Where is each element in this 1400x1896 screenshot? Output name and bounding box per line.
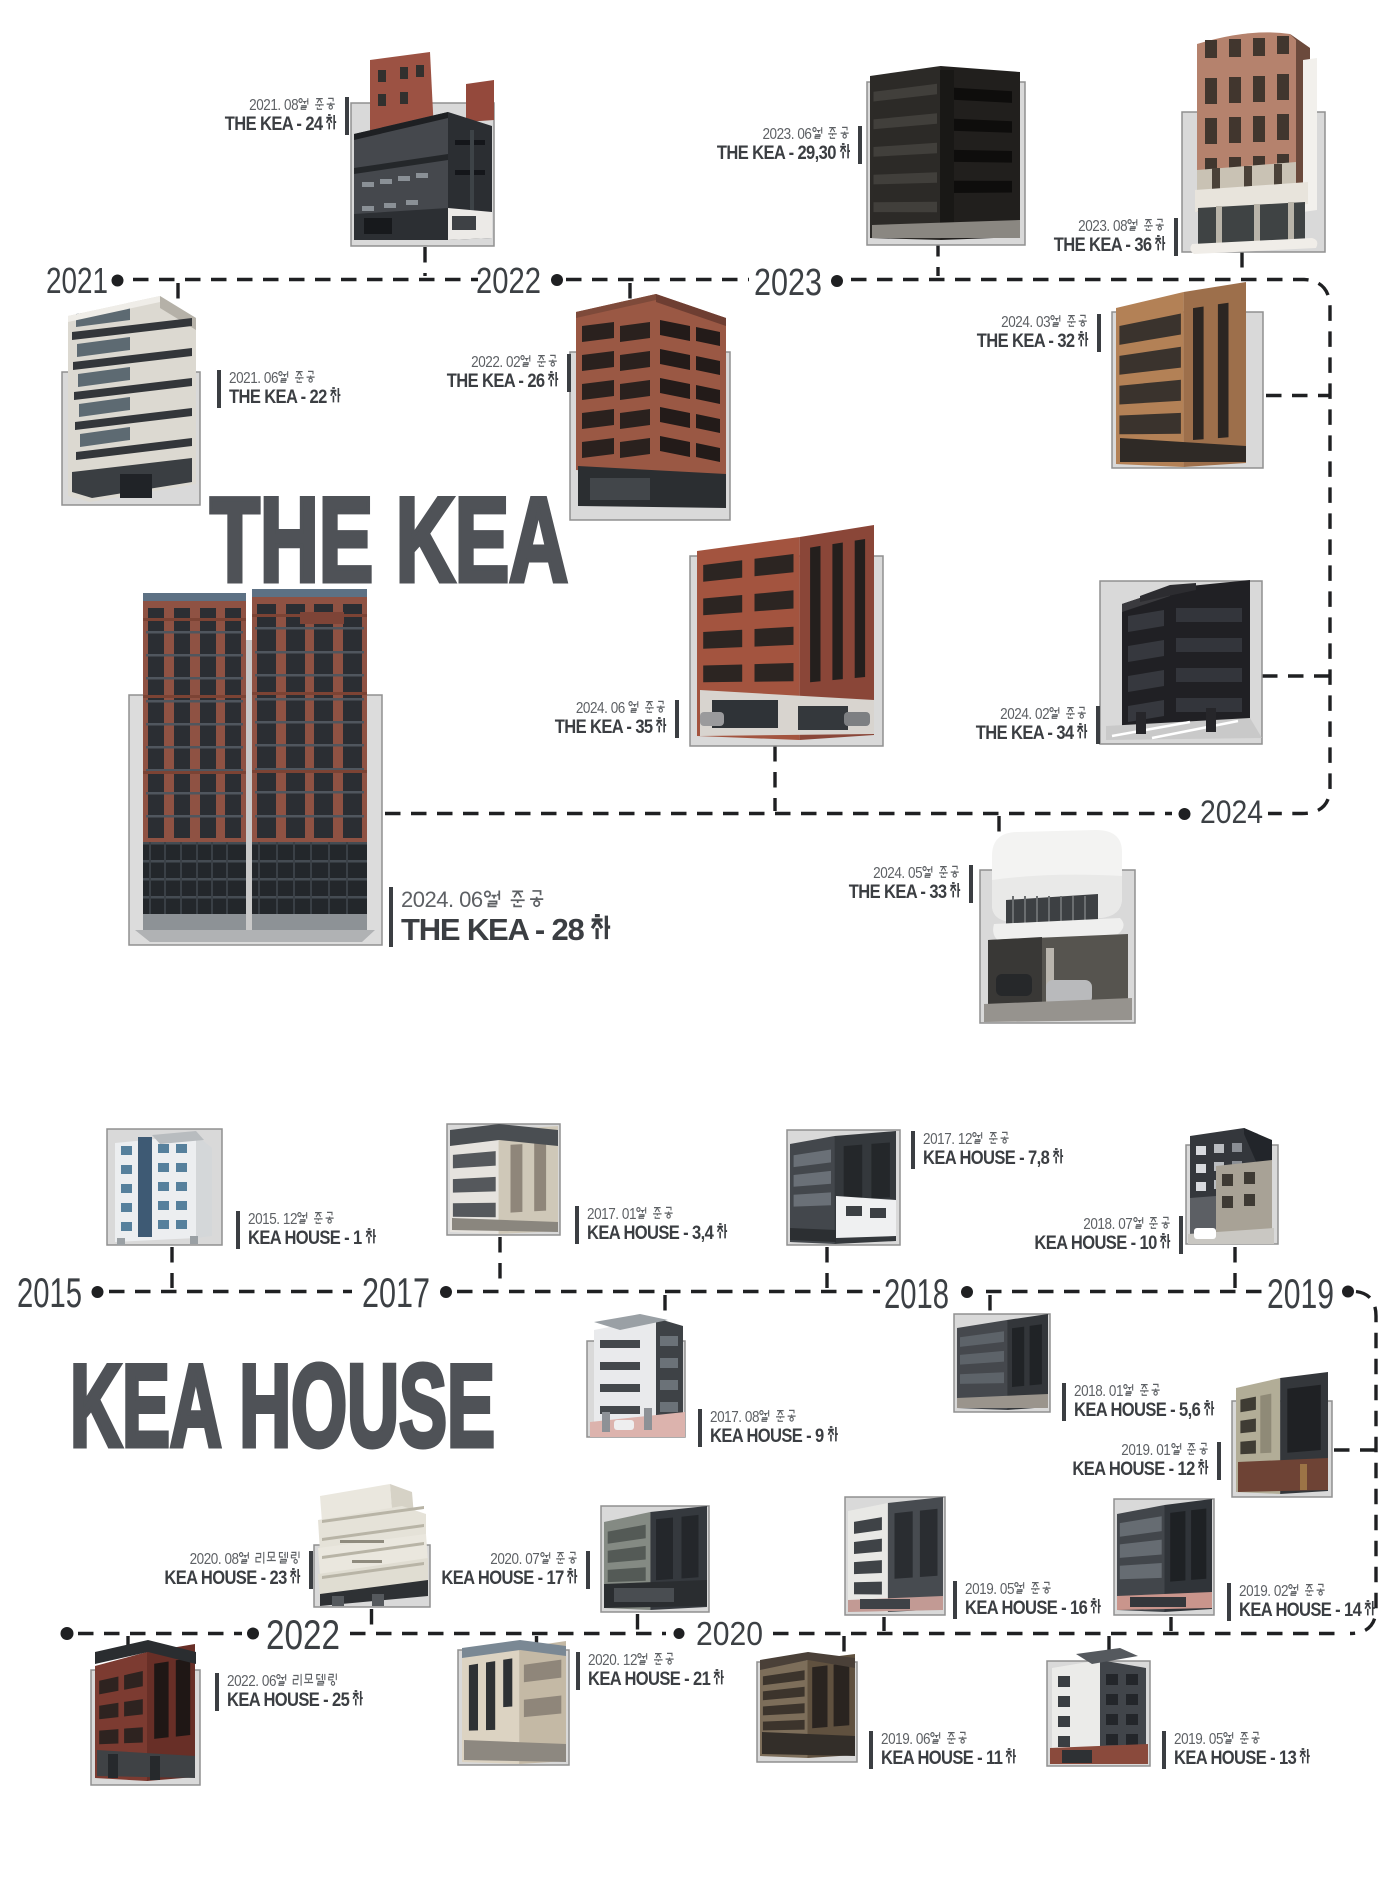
svg-text:2018: 2018 [884,1270,949,1317]
svg-text:2019: 2019 [1267,1270,1334,1317]
svg-text:2017: 2017 [362,1269,430,1316]
svg-text:2022: 2022 [476,260,541,301]
svg-text:THE KEA: THE KEA [210,473,568,607]
svg-text:2023: 2023 [754,262,822,304]
svg-text:KEA HOUSE: KEA HOUSE [70,1340,495,1471]
svg-text:2021: 2021 [46,260,108,301]
svg-text:2020: 2020 [696,1615,763,1652]
svg-text:2022: 2022 [266,1611,340,1658]
svg-text:2024: 2024 [1200,794,1263,830]
svg-text:2015: 2015 [17,1269,82,1316]
